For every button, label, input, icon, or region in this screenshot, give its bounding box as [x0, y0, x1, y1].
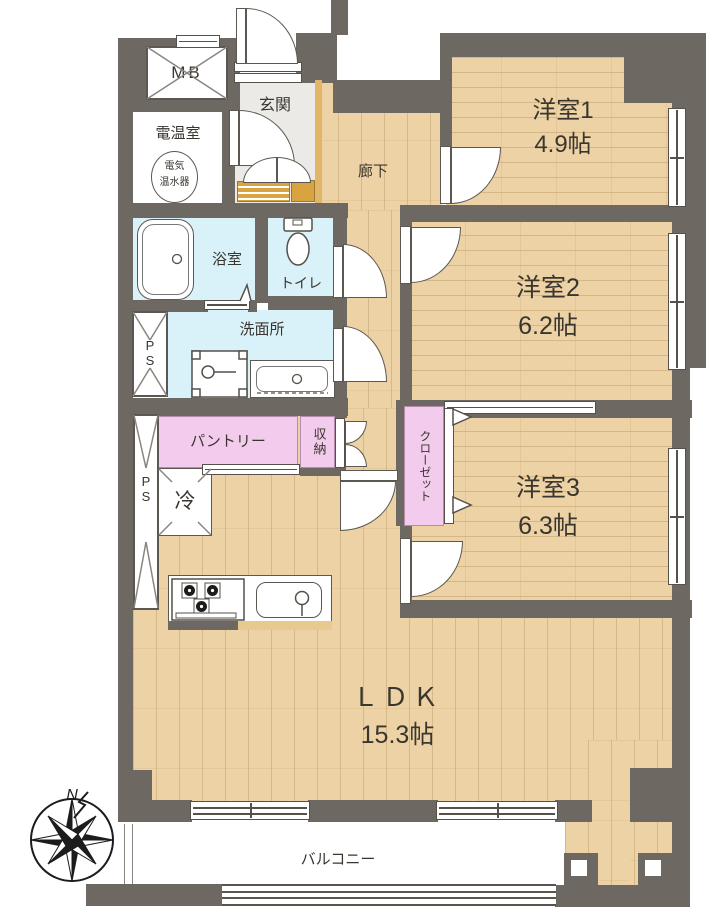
hallway-label: 廊下: [348, 162, 398, 182]
wall-room3-bottom: [400, 600, 692, 618]
kitchen-under-strip-tan: [238, 621, 332, 630]
pantry-slide-door: [202, 464, 300, 475]
entry-door-sill-inner: [234, 73, 302, 83]
room3-size: 6.3帖: [448, 510, 648, 542]
ps1-label: P S: [141, 332, 159, 376]
room1-name: 洋室1: [463, 96, 663, 126]
room1-size: 4.9帖: [463, 130, 663, 160]
ps2-label: P S: [137, 468, 155, 512]
wall-deck-notch: [630, 768, 672, 822]
ldk-size: 15.3帖: [300, 720, 495, 750]
bath-door-sill: [204, 300, 250, 310]
room3-name: 洋室3: [448, 472, 648, 504]
deck-post-right: [645, 860, 661, 876]
floor-plan: MB 電温室 電気 温水器 玄関 廊下 洋室1 4.9帖 洋室2 6.2帖 洋室…: [0, 0, 718, 918]
room1-window: [668, 108, 686, 207]
shuno-door-bar: [335, 418, 345, 468]
pantry-label: パントリー: [162, 431, 294, 453]
room2-room3-transom: [444, 401, 596, 414]
entry-step-striped: [237, 181, 290, 202]
room2-door-leaf: [400, 226, 411, 284]
heater-room-door-leaf: [229, 110, 239, 166]
wall-wash-bottom: [133, 398, 348, 416]
wall-toilet-right-a: [333, 216, 347, 246]
entry-step-solid: [291, 180, 315, 202]
water-heater-line2: 温水器: [151, 176, 198, 190]
wall-ldk-bottom-c: [555, 800, 592, 822]
heater-room-label: 電温室: [140, 124, 216, 144]
wall-top-stub: [331, 0, 348, 35]
wall-ldk-bottom-b: [308, 800, 438, 822]
ldk-window-right: [436, 801, 558, 820]
toilet-door-leaf: [333, 246, 343, 298]
room2-window: [668, 233, 686, 370]
closet-door-bar: [444, 408, 454, 524]
balcony-label: バルコニー: [292, 850, 384, 870]
bathroom-label: 浴室: [196, 250, 258, 270]
vanity-bowl: [256, 366, 328, 392]
pipe-space-2: [133, 414, 159, 610]
room3-window: [668, 448, 686, 585]
wall-hallway-top: [333, 80, 442, 113]
mb-vent: [176, 35, 220, 48]
room1-door-leaf: [440, 146, 451, 204]
compass-north-label: N: [66, 787, 78, 804]
wall-right-thick: [690, 33, 706, 368]
water-heater-line1: 電気: [151, 160, 198, 174]
entry-door-leaf: [236, 8, 246, 64]
ldk-window-left: [190, 801, 310, 820]
room3-door-leaf: [400, 538, 411, 604]
shuno-label: 収納: [303, 420, 333, 464]
entry-door-swing: [246, 8, 298, 64]
wall-bath-top: [118, 203, 348, 218]
wall-entry-right: [296, 33, 337, 83]
washroom-label: 洗面所: [222, 320, 302, 340]
toilet-label: トイレ: [270, 274, 332, 292]
wall-room2-top: [400, 205, 692, 222]
balcony-bottom-bar: [86, 884, 222, 906]
ldk-door-leaf: [340, 470, 398, 481]
kitchen-sink: [256, 582, 322, 618]
wall-ldk-bottom-a: [133, 800, 192, 822]
entry-label: 玄関: [243, 96, 307, 116]
wall-room1-left: [440, 57, 452, 147]
room2-name: 洋室2: [448, 272, 648, 304]
balcony-partition: [124, 824, 133, 884]
room2-size: 6.2帖: [448, 310, 648, 342]
compass-icon: N: [31, 787, 113, 881]
deck-post-left: [571, 860, 587, 876]
washroom-door-leaf: [333, 328, 343, 382]
kitchen-under-strip-dark: [168, 621, 238, 630]
wall-left: [118, 38, 133, 822]
bathtub-inner: [142, 224, 189, 295]
mb-label: MB: [146, 60, 228, 86]
wall-toilet-bottom: [268, 296, 333, 310]
balcony-railing: [222, 884, 556, 906]
refrigerator-label: 冷: [170, 489, 200, 515]
wall-toilet-right-b: [333, 296, 347, 330]
ldk-name: ＬＤＫ: [300, 682, 495, 714]
closet-label: クローゼット: [408, 414, 440, 518]
wall-deck-bottom: [555, 885, 690, 907]
entry-edge-strip: [315, 80, 322, 203]
